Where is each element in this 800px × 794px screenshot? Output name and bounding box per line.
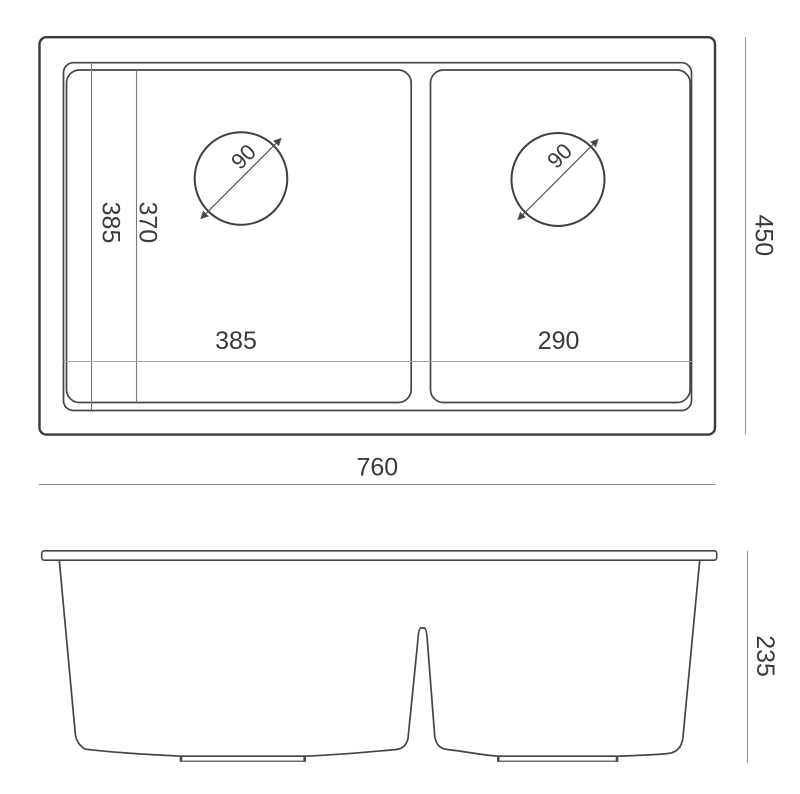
svg-text:450: 450: [750, 214, 778, 256]
svg-text:385: 385: [96, 202, 124, 244]
svg-text:370: 370: [134, 201, 162, 243]
svg-text:235: 235: [751, 635, 779, 677]
svg-text:385: 385: [215, 327, 257, 355]
svg-text:290: 290: [538, 327, 580, 355]
svg-text:760: 760: [356, 454, 398, 482]
